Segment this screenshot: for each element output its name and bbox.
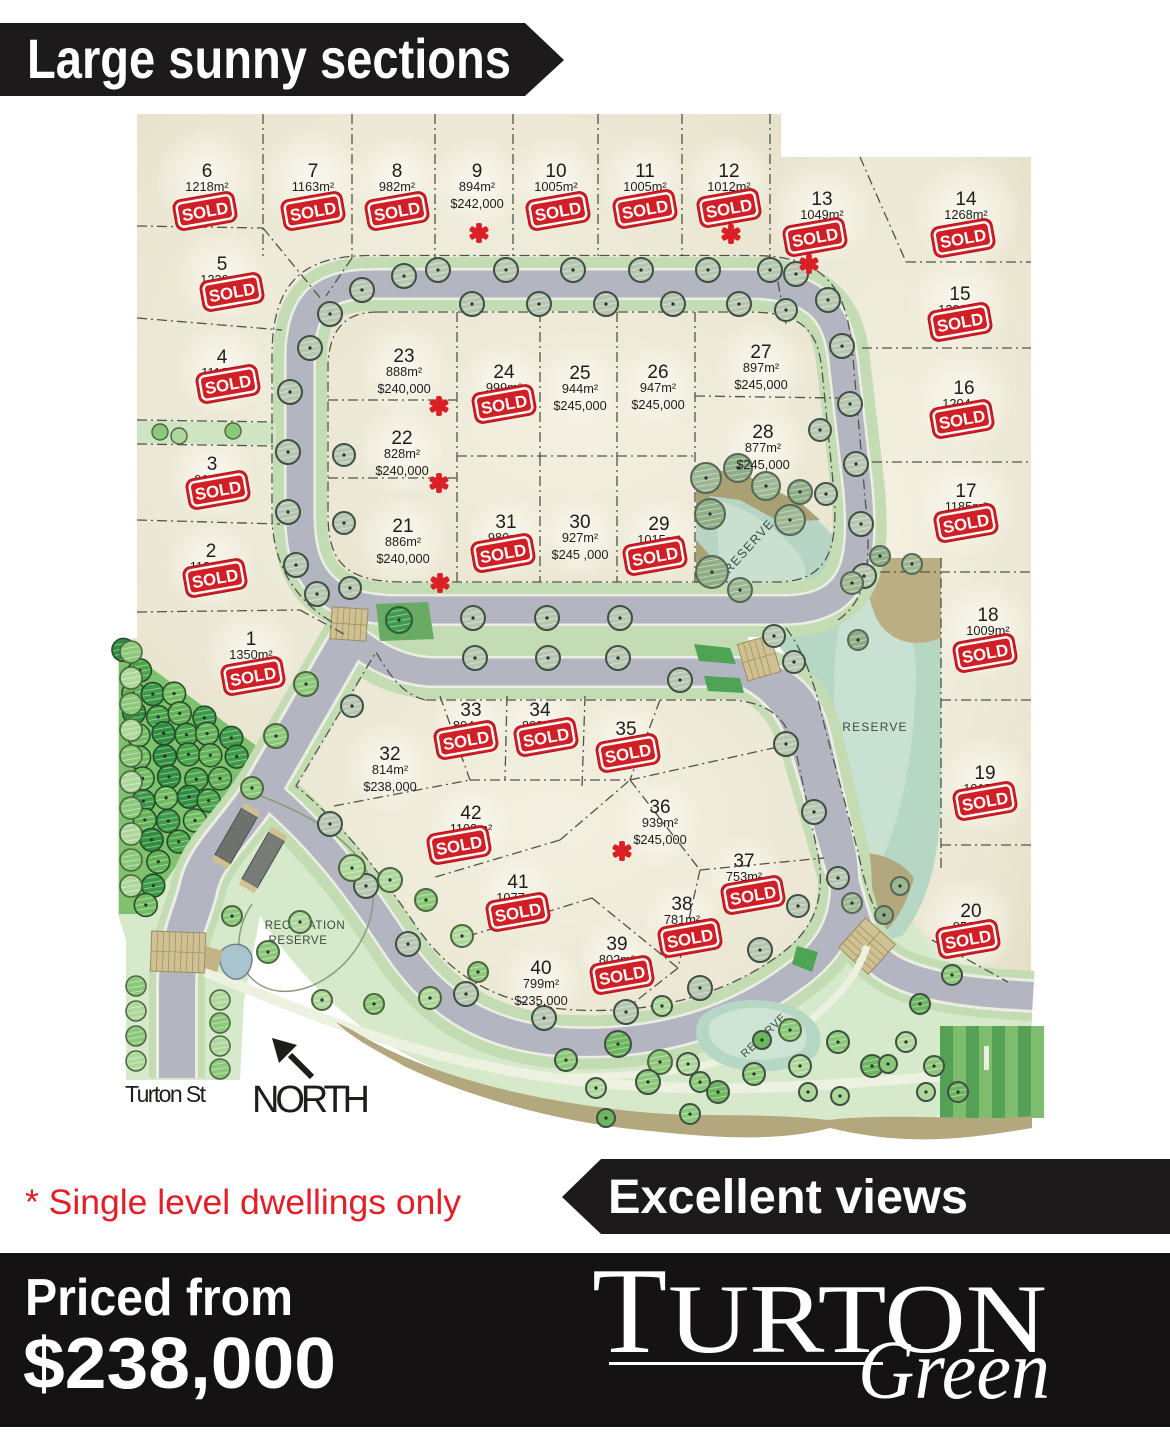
svg-text:$245,000: $245,000 <box>631 397 684 412</box>
svg-text:944m²: 944m² <box>562 381 599 396</box>
svg-text:T: T <box>592 1242 667 1379</box>
svg-text:927m²: 927m² <box>562 530 599 545</box>
svg-text:$242,000: $242,000 <box>450 196 503 211</box>
svg-text:Green: Green <box>858 1324 1050 1417</box>
svg-text:888m²: 888m² <box>386 364 423 379</box>
svg-text:Turton St: Turton St <box>125 1081 207 1107</box>
svg-text:814m²: 814m² <box>372 762 409 777</box>
svg-text:894m²: 894m² <box>459 179 496 194</box>
svg-text:$238,000: $238,000 <box>363 779 416 794</box>
svg-text:RESERVE: RESERVE <box>842 720 908 734</box>
svg-text:877m²: 877m² <box>745 440 782 455</box>
svg-text:Excellent views: Excellent views <box>608 1171 968 1224</box>
svg-text:$240,000: $240,000 <box>377 381 430 396</box>
svg-text:* Single level dwellings only: * Single level dwellings only <box>25 1183 462 1222</box>
svg-text:$245,000: $245,000 <box>736 457 789 472</box>
svg-text:Large sunny sections: Large sunny sections <box>27 27 511 90</box>
svg-text:$245,000: $245,000 <box>633 832 686 847</box>
svg-text:947m²: 947m² <box>640 380 677 395</box>
svg-text:1005m²: 1005m² <box>534 179 578 194</box>
svg-text:$238,000: $238,000 <box>23 1324 336 1404</box>
svg-text:$245 ,000: $245 ,000 <box>552 547 609 562</box>
svg-text:799m²: 799m² <box>523 976 560 991</box>
svg-text:$240,000: $240,000 <box>376 551 429 566</box>
svg-text:982m²: 982m² <box>379 179 416 194</box>
svg-text:897m²: 897m² <box>743 360 780 375</box>
svg-text:$235,000: $235,000 <box>514 993 567 1008</box>
svg-text:$240,000: $240,000 <box>375 463 428 478</box>
svg-text:NORTH: NORTH <box>252 1079 370 1121</box>
svg-text:$245,000: $245,000 <box>553 398 606 413</box>
svg-text:1163m²: 1163m² <box>292 179 335 194</box>
svg-text:939m²: 939m² <box>642 815 679 830</box>
svg-text:828m²: 828m² <box>384 446 421 461</box>
svg-text:Priced from: Priced from <box>25 1269 293 1327</box>
svg-text:886m²: 886m² <box>385 534 422 549</box>
svg-text:$245,000: $245,000 <box>734 377 787 392</box>
